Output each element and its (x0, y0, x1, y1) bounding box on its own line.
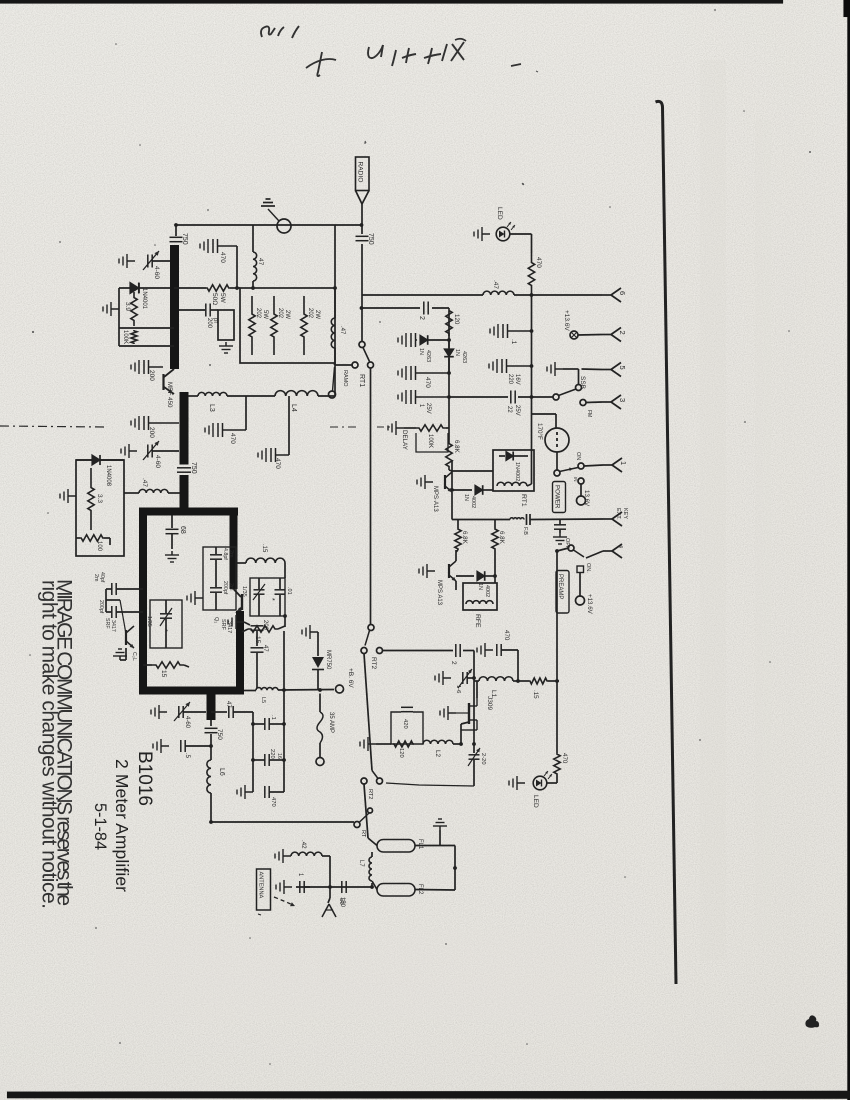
svg-text:2: 2 (450, 661, 457, 665)
svg-text:RADIO: RADIO (357, 162, 364, 183)
svg-text:2W: 2W (314, 310, 320, 319)
svg-text:L2: L2 (434, 750, 441, 757)
svg-text:L4: L4 (290, 404, 297, 412)
svg-text:100K: 100K (427, 434, 433, 448)
svg-text:IN: IN (573, 477, 578, 482)
svg-text:2: 2 (418, 316, 425, 320)
svg-text:EXT.: EXT. (615, 508, 621, 520)
svg-text:202: 202 (277, 308, 283, 319)
svg-text:4-60: 4-60 (184, 716, 190, 729)
svg-text:RFE: RFE (474, 614, 481, 628)
svg-text:LED: LED (532, 795, 539, 808)
svg-text:ON: ON (575, 452, 581, 460)
svg-text:.47: .47 (339, 326, 345, 335)
svg-text:5W: 5W (219, 293, 226, 304)
svg-text:1N4002: 1N4002 (514, 462, 520, 481)
svg-text:2-20: 2-20 (480, 753, 486, 765)
svg-text:MRF 450: MRF 450 (166, 382, 173, 408)
svg-text:470: 470 (561, 753, 568, 764)
svg-text:200: 200 (206, 318, 212, 329)
svg-text:4-60: 4-60 (154, 455, 161, 468)
svg-text:RT1: RT1 (358, 374, 365, 387)
svg-text:5W: 5W (262, 310, 268, 319)
svg-text:200: 200 (148, 427, 155, 438)
svg-text:750: 750 (216, 729, 223, 740)
svg-text:Q₁: Q₁ (213, 617, 219, 623)
svg-text:DELAY: DELAY (401, 430, 408, 450)
svg-text:MPS·A13: MPS·A13 (432, 486, 438, 512)
svg-text:35 AMP: 35 AMP (328, 712, 334, 733)
svg-text:100: 100 (96, 541, 102, 552)
svg-text:B1016: B1016 (134, 751, 156, 806)
svg-text:25V: 25V (425, 403, 431, 414)
svg-text:.42: .42 (300, 840, 307, 849)
svg-text:200pf: 200pf (98, 600, 104, 614)
svg-text:470: 470 (503, 630, 510, 641)
svg-text:1N: 1N (418, 348, 424, 355)
svg-text:+13.6V: +13.6V (563, 310, 570, 331)
svg-text:68: 68 (179, 526, 186, 534)
svg-text:.47: .47 (141, 478, 148, 487)
svg-text:.01: .01 (286, 587, 292, 595)
svg-text:6.8K: 6.8K (498, 531, 505, 545)
svg-text:+B. 6V: +B. 6V (347, 668, 354, 688)
svg-text:470: 470 (219, 252, 226, 263)
svg-text:2m: 2m (93, 574, 99, 582)
svg-text:50Ω: 50Ω (211, 293, 218, 305)
svg-text:6: 6 (618, 291, 627, 295)
svg-text:120: 120 (453, 314, 460, 325)
svg-text:.5: .5 (184, 753, 190, 759)
svg-text:13.6V: 13.6V (583, 490, 590, 507)
svg-text:3.9: 3.9 (124, 302, 131, 311)
svg-text:47: 47 (262, 645, 268, 652)
svg-text:470: 470 (424, 377, 431, 388)
svg-text:2W: 2W (284, 310, 290, 319)
svg-text:4002: 4002 (470, 496, 476, 508)
svg-text:47: 47 (225, 701, 231, 708)
svg-text:15: 15 (254, 636, 261, 644)
svg-text:4263: 4263 (425, 350, 431, 362)
svg-text:5: 5 (618, 366, 627, 370)
svg-text:RT2: RT2 (367, 789, 373, 799)
svg-text:220: 220 (507, 374, 513, 385)
svg-text:KEY: KEY (622, 508, 628, 519)
svg-text:3: 3 (618, 398, 627, 402)
svg-text:47: 47 (257, 258, 264, 266)
svg-text:.1: .1 (270, 715, 276, 720)
svg-text:RT1: RT1 (520, 494, 527, 507)
svg-text:2 Meter Amplifier: 2 Meter Amplifier (112, 759, 132, 892)
svg-text:1-6: 1-6 (455, 685, 461, 693)
svg-text:470: 470 (229, 433, 236, 444)
svg-text:3.3: 3.3 (96, 494, 103, 503)
svg-text:.47: .47 (492, 280, 499, 289)
svg-text:MPS A13: MPS A13 (436, 580, 442, 606)
svg-text:15: 15 (160, 670, 167, 678)
svg-text:SRF: SRF (104, 618, 110, 629)
svg-text:1N: 1N (454, 349, 460, 356)
svg-text:1N: 1N (463, 494, 469, 501)
svg-text:220: 220 (269, 749, 275, 759)
svg-text:+13.6V: +13.6V (586, 594, 593, 615)
svg-text:FM: FM (586, 410, 592, 417)
svg-text:1N: 1N (477, 583, 483, 590)
svg-text:2: 2 (618, 331, 627, 335)
svg-text:L6: L6 (218, 768, 225, 776)
svg-text:16V: 16V (514, 374, 520, 385)
svg-text:L1: L1 (490, 690, 497, 698)
svg-text:1: 1 (619, 461, 628, 465)
svg-text:100K: 100K (122, 330, 128, 344)
svg-text:right to make changes without: right to make changes without notice. (38, 580, 61, 909)
svg-text:4.8pf: 4.8pf (222, 548, 228, 560)
svg-text:ON.: ON. (585, 563, 591, 573)
svg-text:J309: J309 (486, 696, 493, 710)
svg-text:470: 470 (274, 458, 281, 469)
svg-text:SSB: SSB (579, 376, 586, 389)
svg-text:120: 120 (398, 748, 404, 758)
svg-text:750: 750 (181, 233, 188, 245)
svg-text:*: * (268, 598, 275, 601)
svg-text:6.8K: 6.8K (453, 440, 460, 454)
svg-text:1N4001: 1N4001 (141, 288, 147, 310)
svg-text:L5: L5 (260, 697, 266, 703)
svg-text:RAMO: RAMO (342, 370, 348, 387)
svg-text:202: 202 (255, 308, 261, 319)
svg-text:25V: 25V (514, 405, 520, 416)
svg-text:2m: 2m (228, 583, 234, 591)
svg-text:FL1: FL1 (417, 839, 423, 850)
svg-text:3417: 3417 (226, 621, 232, 633)
svg-text:200: 200 (148, 370, 155, 381)
svg-text:SRF: SRF (220, 619, 226, 631)
svg-text:L7: L7 (358, 860, 364, 867)
svg-text:RT: RT (360, 830, 366, 838)
svg-text:2m: 2m (228, 550, 234, 558)
svg-text:4-60: 4-60 (153, 266, 160, 279)
svg-text:3417: 3417 (110, 620, 116, 632)
svg-text:PREAMP: PREAMP (557, 574, 563, 599)
svg-text:470: 470 (270, 797, 276, 807)
svg-text:22: 22 (506, 406, 512, 413)
svg-text:1N4008: 1N4008 (105, 465, 111, 487)
svg-text:1/35: 1/35 (146, 616, 152, 627)
svg-text:.15: .15 (532, 690, 539, 699)
svg-text:50: 50 (338, 898, 344, 905)
svg-text:RT2: RT2 (370, 657, 377, 670)
svg-text:C₂L: C₂L (131, 652, 137, 661)
svg-text:200pf: 200pf (222, 581, 228, 595)
svg-text:1/35: 1/35 (241, 586, 247, 597)
svg-text:202: 202 (307, 308, 313, 319)
svg-text:170°F: 170°F (536, 423, 544, 440)
svg-text:MR750: MR750 (325, 650, 331, 670)
svg-text:F.B: F.B (522, 527, 528, 535)
svg-text:.1: .1 (510, 339, 517, 345)
svg-text:LED: LED (496, 207, 503, 220)
svg-text:420: 420 (402, 719, 408, 729)
svg-text:.15: .15 (261, 544, 267, 553)
svg-text:4263: 4263 (461, 351, 467, 363)
svg-text:L3: L3 (208, 404, 215, 412)
svg-text:6.8K: 6.8K (461, 531, 468, 545)
svg-text:750: 750 (367, 233, 374, 245)
svg-text:*: * (161, 629, 168, 632)
svg-text:4: 4 (617, 545, 623, 548)
svg-text:4002: 4002 (484, 585, 490, 597)
svg-text:16: 16 (276, 753, 282, 759)
svg-text:470: 470 (535, 257, 542, 268)
svg-text:5-1-84: 5-1-84 (91, 803, 110, 850)
svg-text:pf: pf (212, 318, 218, 323)
svg-text:750: 750 (190, 462, 197, 474)
svg-text:POWER: POWER (554, 485, 561, 509)
svg-text:ANTENNA: ANTENNA (258, 872, 264, 899)
